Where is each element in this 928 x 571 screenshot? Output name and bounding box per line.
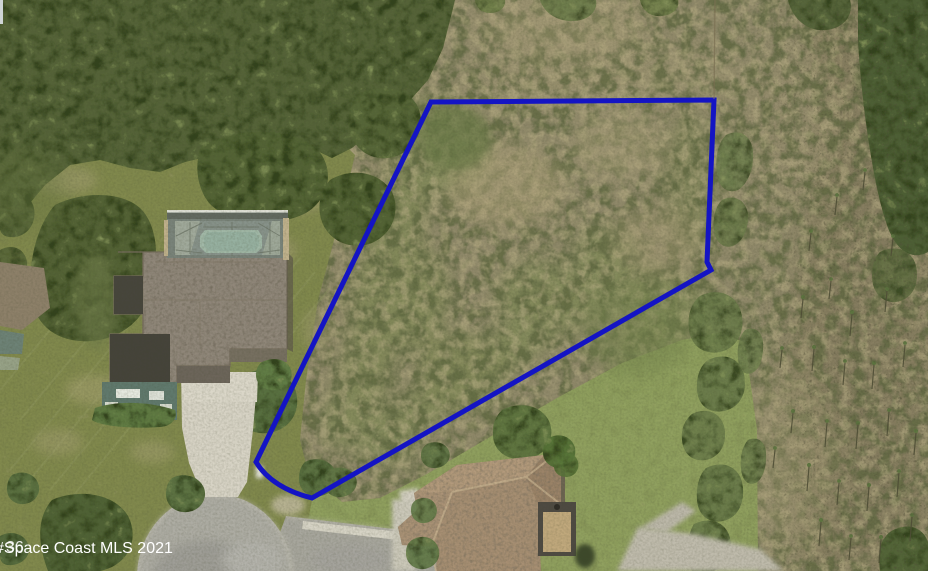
svg-text:36: 36 xyxy=(6,539,24,556)
svg-text:#Space Coast MLS 2021: #Space Coast MLS 2021 xyxy=(0,540,173,557)
